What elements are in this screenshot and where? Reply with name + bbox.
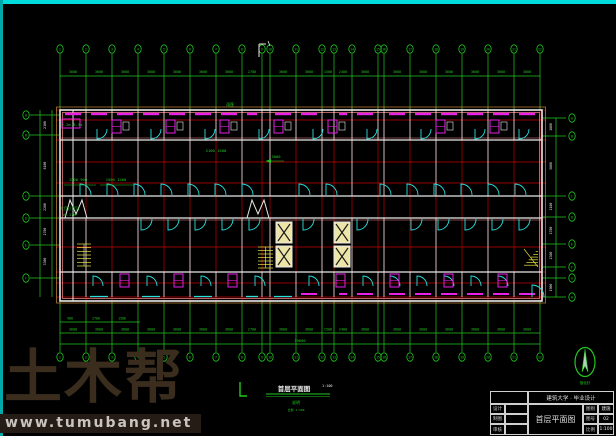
drawing-title-label: 首层平面图1:100说明比例 1:100 xyxy=(240,382,333,412)
left-border-strip xyxy=(0,0,3,436)
door-swing xyxy=(313,129,323,139)
svg-text:12: 12 xyxy=(320,48,324,52)
svg-text:3600: 3600 xyxy=(471,70,479,74)
svg-text:10: 10 xyxy=(268,356,272,360)
svg-text:8: 8 xyxy=(241,356,243,360)
svg-text:3: 3 xyxy=(111,48,113,52)
door-swing xyxy=(475,129,485,139)
walls xyxy=(57,107,546,303)
svg-text:6: 6 xyxy=(189,48,191,52)
svg-text:B: B xyxy=(571,134,573,138)
svg-text:2700: 2700 xyxy=(43,228,47,236)
svg-text:H: H xyxy=(571,295,573,299)
svg-text:3600: 3600 xyxy=(173,327,181,331)
double-door xyxy=(247,200,269,218)
door-swing xyxy=(201,276,211,286)
title-block-label: 设计 xyxy=(490,404,505,414)
svg-text:A: A xyxy=(571,116,573,120)
svg-text:2700: 2700 xyxy=(248,70,256,74)
svg-text:D: D xyxy=(25,216,27,220)
svg-text:3600: 3600 xyxy=(95,327,103,331)
top-border-strip xyxy=(0,0,616,4)
svg-text:F: F xyxy=(25,276,27,280)
svg-text:3600: 3600 xyxy=(419,70,427,74)
svg-text:39600: 39600 xyxy=(294,338,306,343)
svg-text:22: 22 xyxy=(538,356,542,360)
svg-text:16.17m²: 16.17m² xyxy=(62,212,78,217)
svg-text:3600: 3600 xyxy=(147,70,155,74)
svg-text:1500: 1500 xyxy=(118,316,126,320)
svg-text:3600: 3600 xyxy=(121,327,129,331)
svg-text:3600: 3600 xyxy=(95,70,103,74)
title-block: 建筑大学 · 毕业设计 设计 首层平面图 图别 建施 制图 图号 02 审核 比… xyxy=(490,391,614,435)
svg-text:6100: 6100 xyxy=(43,162,47,170)
door-swing xyxy=(380,184,391,195)
door-swing xyxy=(421,129,431,139)
svg-text:13: 13 xyxy=(332,48,336,52)
door-swing xyxy=(363,276,373,286)
svg-text:3600: 3600 xyxy=(69,70,77,74)
svg-text:3600: 3600 xyxy=(393,70,401,74)
svg-text:3600: 3600 xyxy=(497,327,505,331)
door-swing xyxy=(161,184,172,195)
door-swing xyxy=(80,184,91,195)
svg-text:2300: 2300 xyxy=(549,252,553,260)
svg-text:12: 12 xyxy=(320,356,324,360)
svg-text:3600: 3600 xyxy=(445,70,453,74)
svg-text:3600: 3600 xyxy=(225,327,233,331)
svg-text:14: 14 xyxy=(350,48,354,52)
svg-text:8: 8 xyxy=(241,48,243,52)
title-block-label: 审核 xyxy=(490,424,505,435)
svg-text:1500 900: 1500 900 xyxy=(69,177,88,182)
svg-text:900: 900 xyxy=(67,316,73,320)
svg-text:3600: 3600 xyxy=(523,327,531,331)
svg-text:11: 11 xyxy=(294,48,298,52)
svg-text:3600: 3600 xyxy=(361,70,369,74)
svg-text:7: 7 xyxy=(215,356,217,360)
svg-text:21: 21 xyxy=(512,356,516,360)
svg-text:20: 20 xyxy=(486,48,490,52)
svg-text:21: 21 xyxy=(512,48,516,52)
svg-text:2100: 2100 xyxy=(43,121,47,129)
svg-text:19: 19 xyxy=(460,356,464,360)
door-swing xyxy=(411,219,422,230)
svg-text:3600: 3600 xyxy=(199,327,207,331)
svg-text:3600: 3600 xyxy=(305,70,313,74)
door-swing xyxy=(222,219,233,230)
svg-text:3600: 3600 xyxy=(471,327,479,331)
title-block-label: 制图 xyxy=(490,414,505,424)
svg-text:1500: 1500 xyxy=(324,327,332,331)
svg-text:11: 11 xyxy=(294,356,298,360)
door-swing xyxy=(461,184,472,195)
svg-text:3300: 3300 xyxy=(43,258,47,266)
svg-text:13: 13 xyxy=(332,356,336,360)
svg-text:3600: 3600 xyxy=(279,327,287,331)
svg-text:2: 2 xyxy=(85,48,87,52)
svg-text:3600: 3600 xyxy=(121,70,129,74)
door-swing xyxy=(97,129,107,139)
svg-text:3000: 3000 xyxy=(271,154,281,159)
svg-text:B: B xyxy=(25,133,27,137)
svg-text:3600: 3600 xyxy=(305,327,313,331)
svg-text:9: 9 xyxy=(261,48,263,52)
svg-text:3600: 3600 xyxy=(361,327,369,331)
door-swing xyxy=(519,129,529,139)
svg-text:3600: 3600 xyxy=(393,327,401,331)
svg-text:F: F xyxy=(571,265,573,269)
svg-text:2400: 2400 xyxy=(339,327,347,331)
svg-text:2400: 2400 xyxy=(339,70,347,74)
svg-text:C: C xyxy=(571,194,573,198)
svg-text:2200: 2200 xyxy=(43,203,47,211)
door-swing xyxy=(107,184,118,195)
title-block-drawing-name: 首层平面图 xyxy=(528,404,583,435)
svg-text:17: 17 xyxy=(408,356,412,360)
door-swing xyxy=(326,184,337,195)
svg-text:18: 18 xyxy=(434,48,438,52)
svg-text:E: E xyxy=(571,242,573,246)
door-swing xyxy=(255,276,265,286)
door-swing xyxy=(242,184,253,195)
door-swing xyxy=(492,219,503,230)
door-swing xyxy=(417,276,427,286)
svg-text:C: C xyxy=(25,194,27,198)
svg-text:2100 1500: 2100 1500 xyxy=(206,148,227,153)
svg-text:2700: 2700 xyxy=(248,327,256,331)
door-swing xyxy=(134,184,145,195)
svg-text:17: 17 xyxy=(408,48,412,52)
svg-text:3600: 3600 xyxy=(199,70,207,74)
door-swing xyxy=(299,184,310,195)
title-block-value: 建施 xyxy=(598,404,614,414)
viewport-boundary xyxy=(57,107,546,303)
door-swing xyxy=(357,219,368,230)
stairs xyxy=(77,244,538,268)
svg-text:A: A xyxy=(25,113,27,117)
elevators xyxy=(276,222,350,267)
svg-text:1900: 1900 xyxy=(549,284,553,292)
title-block-value: 02 xyxy=(598,414,614,424)
axis-grid: 1122334455667788991010111112121313141415… xyxy=(23,45,575,361)
title-block-value: 1:100 xyxy=(598,424,614,435)
title-block-label: 图号 xyxy=(583,414,598,424)
door-swing xyxy=(215,184,226,195)
svg-text:22: 22 xyxy=(538,48,542,52)
svg-text:20: 20 xyxy=(486,356,490,360)
svg-text:1: 1 xyxy=(59,48,61,52)
svg-text:16: 16 xyxy=(382,48,386,52)
title-block-label: 图别 xyxy=(583,404,598,414)
svg-text:2100: 2100 xyxy=(549,203,553,211)
door-swing xyxy=(205,129,215,139)
svg-text:19: 19 xyxy=(460,48,464,52)
svg-text:2700: 2700 xyxy=(549,227,553,235)
door-swing xyxy=(259,129,269,139)
svg-text:1:100: 1:100 xyxy=(322,384,333,388)
svg-text:2.2m 3.3m: 2.2m 3.3m xyxy=(62,122,83,127)
title-block-empty-cell xyxy=(490,391,528,404)
title-block-value xyxy=(505,424,528,435)
door-swing xyxy=(407,184,418,195)
svg-text:10: 10 xyxy=(268,48,272,52)
title-block-value xyxy=(505,414,528,424)
svg-text:4: 4 xyxy=(137,48,139,52)
door-swing xyxy=(249,219,260,230)
svg-text:3600: 3600 xyxy=(445,327,453,331)
door-swing xyxy=(151,129,161,139)
svg-text:9: 9 xyxy=(261,356,263,360)
svg-text:15: 15 xyxy=(376,356,380,360)
svg-text:1500 1200: 1500 1200 xyxy=(106,177,127,182)
svg-text:18: 18 xyxy=(434,356,438,360)
door-swing xyxy=(309,276,319,286)
door-swing xyxy=(195,219,206,230)
title-block-project: 建筑大学 · 毕业设计 xyxy=(528,391,614,404)
north-arrow-icon: 指北针 xyxy=(575,348,595,386)
svg-text:大厅(门厅): 大厅(门厅) xyxy=(60,206,80,211)
svg-text:7: 7 xyxy=(215,48,217,52)
door-swing xyxy=(303,219,314,230)
watermark-brand: 土木帮 xyxy=(4,346,204,410)
svg-text:14: 14 xyxy=(350,356,354,360)
door-swing xyxy=(471,276,481,286)
svg-text:3600: 3600 xyxy=(419,327,427,331)
door-swing xyxy=(438,219,449,230)
svg-text:比例 1:100: 比例 1:100 xyxy=(288,407,305,412)
title-block-label: 比例 xyxy=(583,424,598,435)
svg-text:3600: 3600 xyxy=(497,70,505,74)
door-swing xyxy=(147,276,157,286)
svg-text:3600: 3600 xyxy=(523,70,531,74)
svg-text:雨篷: 雨篷 xyxy=(226,102,234,107)
svg-text:1500: 1500 xyxy=(324,70,332,74)
svg-text:5800: 5800 xyxy=(549,162,553,170)
door-swing xyxy=(465,219,476,230)
svg-text:1800: 1800 xyxy=(549,123,553,131)
svg-text:5: 5 xyxy=(163,48,165,52)
door-swing xyxy=(488,184,499,195)
svg-text:E: E xyxy=(25,243,27,247)
drawing-title: 首层平面图 xyxy=(278,384,311,393)
svg-text:3600: 3600 xyxy=(173,70,181,74)
svg-text:3600: 3600 xyxy=(225,70,233,74)
door-swing xyxy=(519,219,530,230)
svg-text:3600: 3600 xyxy=(279,70,287,74)
svg-text:D: D xyxy=(571,215,573,219)
windows xyxy=(65,114,535,297)
svg-text:指北针: 指北针 xyxy=(580,380,591,385)
svg-text:16: 16 xyxy=(382,356,386,360)
door-swing xyxy=(367,129,377,139)
door-swing xyxy=(515,184,526,195)
watermark-url: www.tumubang.net xyxy=(0,414,201,433)
title-block-value xyxy=(505,404,528,414)
cad-drawing-viewport: 1122334455667788991010111112121313141415… xyxy=(0,0,616,436)
svg-text:2700: 2700 xyxy=(92,316,100,320)
svg-text:15: 15 xyxy=(376,48,380,52)
svg-text:3600: 3600 xyxy=(69,327,77,331)
svg-text:3600: 3600 xyxy=(147,327,155,331)
svg-text:说明: 说明 xyxy=(292,399,300,405)
door-swing xyxy=(93,276,103,286)
svg-text:G: G xyxy=(571,276,573,280)
door-swing xyxy=(168,219,179,230)
door-swing xyxy=(141,219,152,230)
